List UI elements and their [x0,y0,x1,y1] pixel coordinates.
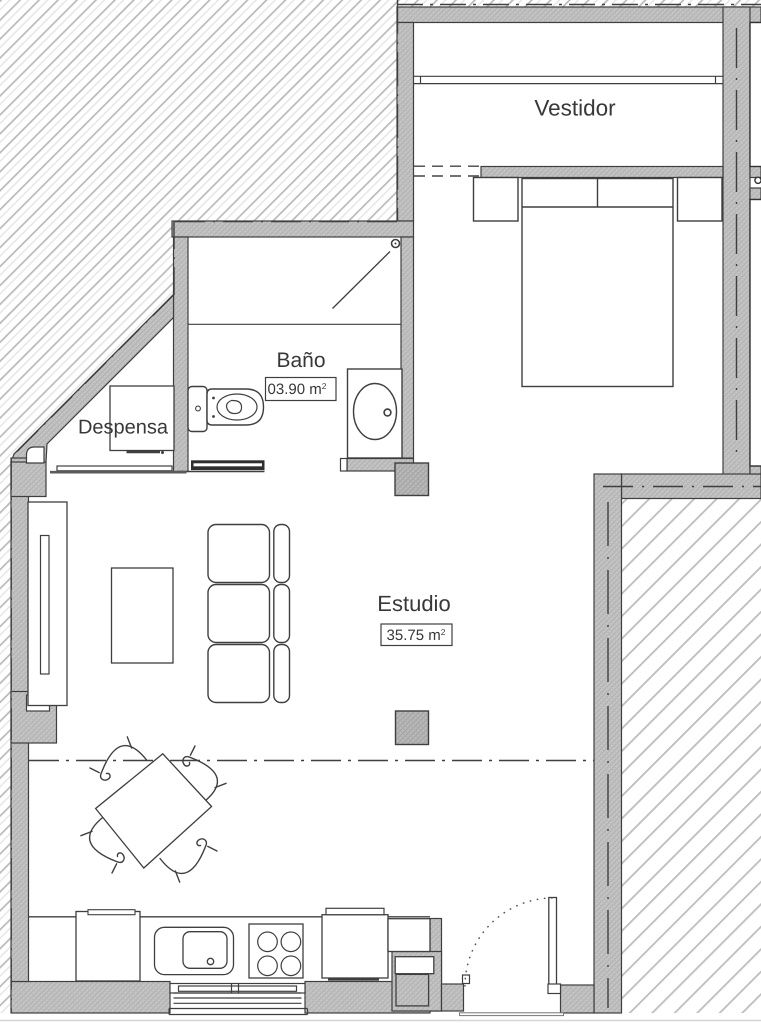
svg-text:Baño: Baño [276,349,325,372]
svg-text:03.90 m2: 03.90 m2 [268,381,327,398]
svg-text:Estudio: Estudio [377,591,450,616]
svg-text:Despensa: Despensa [78,416,169,438]
svg-text:Vestidor: Vestidor [534,95,616,120]
svg-text:35.75 m2: 35.75 m2 [387,627,446,644]
